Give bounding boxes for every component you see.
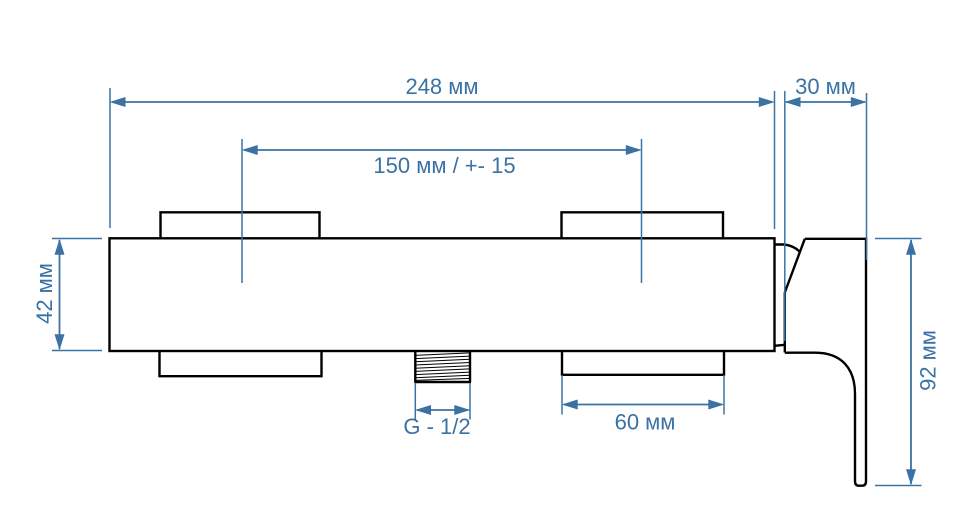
- svg-text:248 мм: 248 мм: [405, 74, 478, 99]
- svg-text:60 мм: 60 мм: [615, 410, 676, 435]
- svg-text:42 мм: 42 мм: [32, 263, 57, 324]
- svg-text:150 мм / +- 15: 150 мм / +- 15: [373, 153, 515, 178]
- svg-text:30 мм: 30 мм: [795, 74, 856, 99]
- svg-text:G - 1/2: G - 1/2: [403, 414, 470, 439]
- svg-text:92 мм: 92 мм: [916, 330, 941, 391]
